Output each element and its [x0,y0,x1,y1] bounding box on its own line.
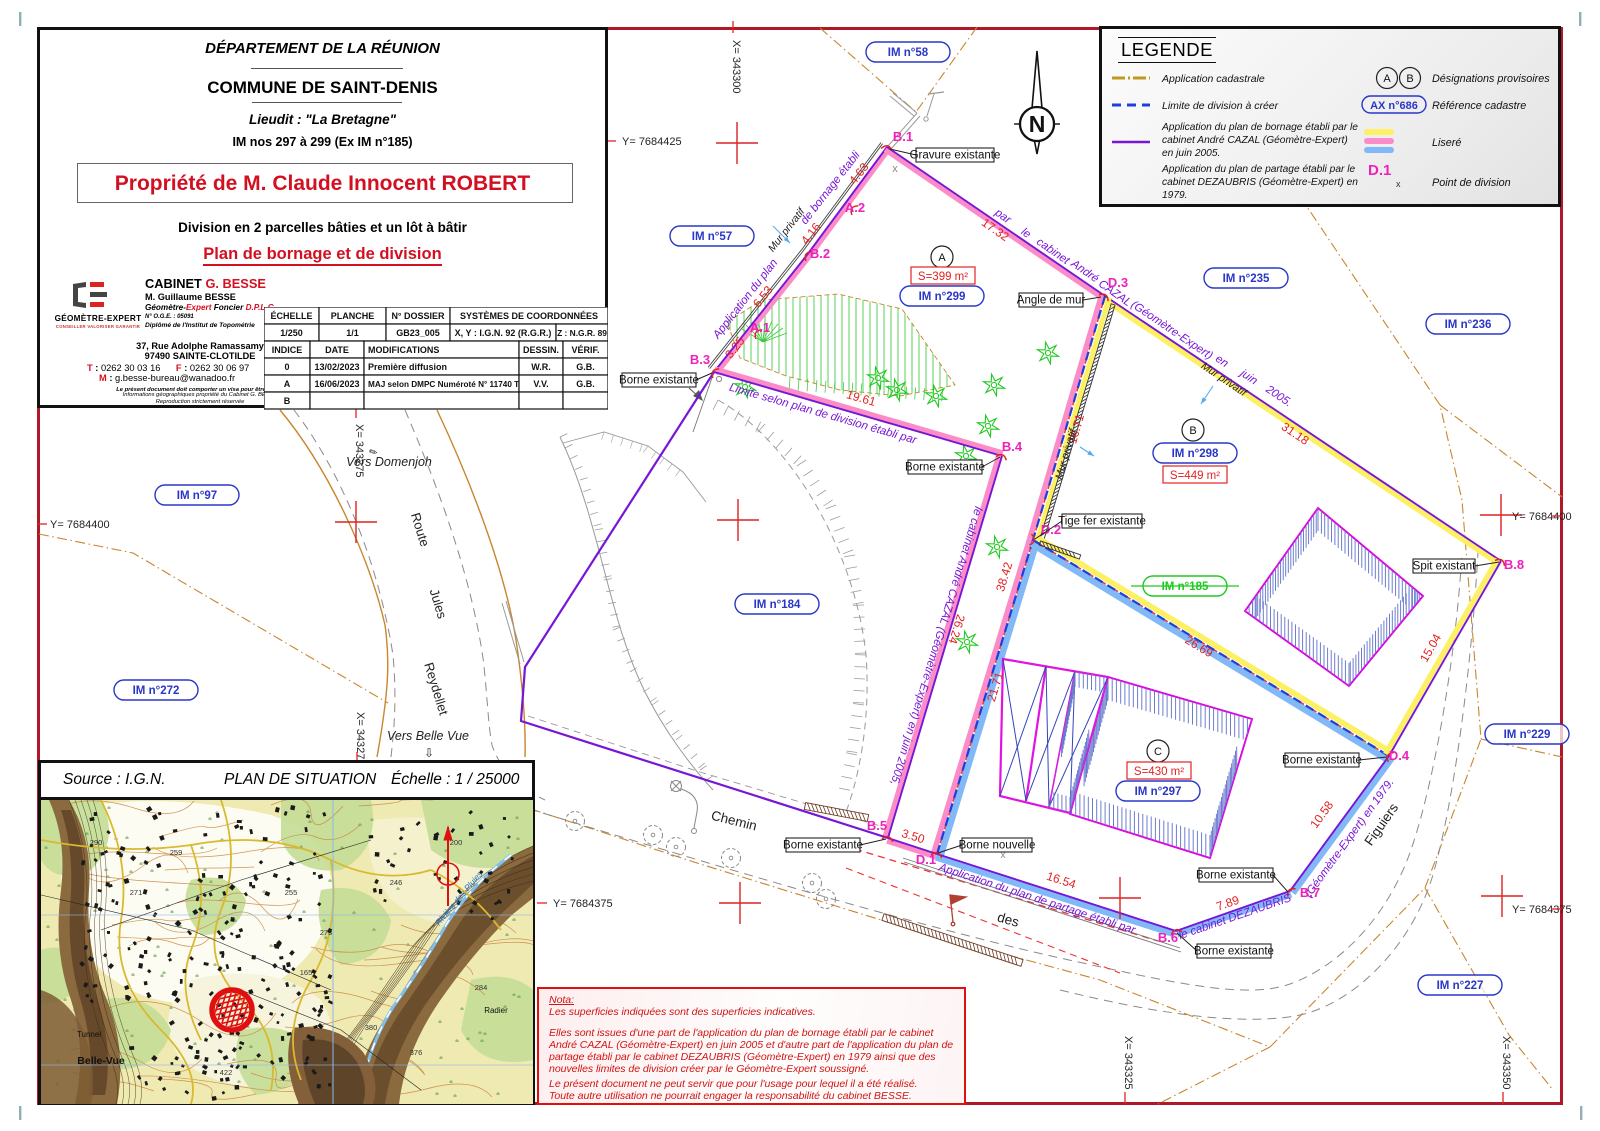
svg-text:16.54: 16.54 [1045,869,1078,892]
svg-text:Belle-Vue: Belle-Vue [77,1055,125,1067]
svg-text:X= 343350: X= 343350 [1500,1036,1512,1090]
svg-text:Route: Route [408,511,432,549]
svg-text:246: 246 [390,878,403,887]
svg-text:IM n°184: IM n°184 [754,599,801,611]
svg-text:IM n°297: IM n°297 [1135,786,1182,798]
svg-text:A: A [1383,73,1391,85]
svg-text:290: 290 [90,838,103,847]
svg-text:C: C [1154,746,1162,758]
svg-text:B.6: B.6 [1158,930,1178,945]
svg-text:D.3: D.3 [1108,275,1128,290]
svg-text:Désignations provisoires: Désignations provisoires [1432,73,1550,85]
svg-text:G.B.: G.B. [576,379,595,389]
svg-text:271: 271 [130,888,143,897]
svg-text:284: 284 [475,983,488,992]
svg-text:Borne nouvelle: Borne nouvelle [959,840,1036,852]
svg-text:VÉRIF.: VÉRIF. [571,345,599,355]
svg-text:422: 422 [220,1068,233,1077]
svg-text:IM n°227: IM n°227 [1437,980,1484,992]
svg-text:MAJ selon DMPC Numéroté N° 117: MAJ selon DMPC Numéroté N° 11740 T [368,380,519,389]
svg-text:A: A [938,252,946,264]
svg-text:IM n°236: IM n°236 [1445,319,1492,331]
svg-text:Chemin: Chemin [710,808,759,834]
svg-text:165: 165 [300,968,313,977]
svg-text:Borne existante: Borne existante [619,375,699,387]
svg-text:Tige fer existante: Tige fer existante [1058,516,1146,528]
svg-text:D.1: D.1 [916,852,936,867]
svg-text:259: 259 [170,848,183,857]
svg-text:S=399 m²: S=399 m² [918,271,968,283]
svg-text:IM n°229: IM n°229 [1504,729,1551,741]
svg-text:273: 273 [320,928,333,937]
svg-text:Borne existante: Borne existante [1282,755,1362,767]
svg-text:Application cadastrale: Application cadastrale [1161,73,1265,85]
svg-text:(Géomètre-Expert) en 1979.: (Géomètre-Expert) en 1979. [1302,777,1396,900]
svg-text:Borne existante: Borne existante [1196,870,1276,882]
svg-text:B.3: B.3 [690,352,710,367]
svg-text:B.2: B.2 [810,246,830,261]
svg-text:1979.: 1979. [1162,190,1188,201]
svg-text:B: B [1406,73,1413,85]
svg-text:DESSIN.: DESSIN. [523,345,559,355]
svg-text:X= 343275: X= 343275 [353,424,365,478]
svg-text:380: 380 [365,1023,378,1032]
svg-text:Borne existante: Borne existante [783,840,863,852]
svg-text:Y= 7684375: Y= 7684375 [1512,904,1572,916]
svg-text:A.1: A.1 [750,320,770,335]
svg-text:Y= 7684400: Y= 7684400 [1512,511,1572,523]
svg-text:1/250: 1/250 [280,328,303,338]
svg-text:376: 376 [410,1048,423,1057]
svg-text:Jules: Jules [427,587,450,621]
svg-text:Vers Belle Vue: Vers Belle Vue [387,729,469,743]
svg-text:Angle de mur: Angle de mur [1017,295,1086,307]
svg-text:Tunnel: Tunnel [77,1030,101,1039]
svg-text:des: des [996,909,1021,929]
svg-text:N° DOSSIER: N° DOSSIER [391,311,445,321]
svg-text:S=430 m²: S=430 m² [1134,766,1184,778]
svg-text:D.1: D.1 [1368,162,1391,179]
svg-text:N: N [1029,111,1046,137]
svg-text:Radier: Radier [484,1006,508,1015]
svg-text:Application du plan de bornage: Application du plan de bornage établi pa… [1161,122,1358,133]
svg-text:Reydellet: Reydellet [421,661,451,718]
svg-text:Application du plan de partage: Application du plan de partage établi pa… [1161,164,1355,175]
svg-text:Spit existant: Spit existant [1413,561,1476,573]
svg-text:x: x [892,163,898,175]
svg-text:SYSTÈMES DE COORDONNÉES: SYSTÈMES DE COORDONNÉES [460,311,598,321]
svg-text:A: A [284,379,291,389]
svg-text:Limite de division à créer: Limite de division à créer [1162,100,1279,112]
svg-text:Liseré: Liseré [1432,137,1461,149]
svg-text:Référence cadastre: Référence cadastre [1432,100,1526,112]
svg-text:DATE: DATE [325,345,349,355]
svg-text:13/02/2023: 13/02/2023 [314,362,359,372]
svg-text:Mur privatif: Mur privatif [766,205,808,254]
svg-text:x: x [1396,179,1401,189]
svg-text:IM n°298: IM n°298 [1172,448,1219,460]
svg-text:Application du plan de partage: Application du plan de partage établi pa… [936,861,1138,937]
svg-text:IM n°235: IM n°235 [1223,273,1270,285]
svg-text:en juin 2005.: en juin 2005. [1162,148,1220,159]
svg-text:X= 343275: X= 343275 [354,712,366,766]
svg-text:IM n°58: IM n°58 [888,47,929,59]
svg-text:IM n°97: IM n°97 [177,490,217,502]
svg-text:Borne existante: Borne existante [1194,946,1274,958]
svg-text:Gravure existante: Gravure existante [910,150,1001,162]
svg-text:⇩: ⇩ [424,746,434,760]
svg-text:PLANCHE: PLANCHE [331,311,375,321]
svg-text:Point de division: Point de division [1432,177,1511,189]
svg-text:IM n°185: IM n°185 [1162,581,1209,593]
svg-text:AX n°686: AX n°686 [1370,100,1418,112]
svg-text:A.2: A.2 [845,200,865,215]
svg-text:16/06/2023: 16/06/2023 [314,379,359,389]
svg-text:cabinet André CAZAL (Géomètre-: cabinet André CAZAL (Géomètre-Expert) [1162,135,1348,146]
svg-text:ÉCHELLE: ÉCHELLE [270,311,312,321]
svg-text:IM n°57: IM n°57 [692,231,732,243]
svg-text:X, Y : I.G.N. 92 (R.G.R.): X, Y : I.G.N. 92 (R.G.R.) [455,328,552,338]
svg-text:GB23_005: GB23_005 [396,328,440,338]
svg-text:MODIFICATIONS: MODIFICATIONS [368,345,439,355]
svg-text:B: B [1189,425,1196,437]
svg-text:G.B.: G.B. [576,362,595,372]
svg-text:INDICE: INDICE [272,345,303,355]
svg-text:Z : N.G.R. 89: Z : N.G.R. 89 [557,328,607,338]
svg-text:Première diffusion: Première diffusion [368,362,447,372]
svg-text:255: 255 [285,888,298,897]
svg-text:W.R.: W.R. [531,362,551,372]
svg-text:10.58: 10.58 [1307,798,1336,831]
svg-text:B.1: B.1 [893,129,913,144]
svg-text:0: 0 [284,362,289,372]
svg-text:IM n°299: IM n°299 [919,291,966,303]
svg-text:D.4: D.4 [1389,748,1410,763]
svg-text:(Géomètre-Expert): (Géomètre-Expert) [1129,299,1215,363]
svg-text:de bornage établi: de bornage établi [799,149,863,227]
svg-text:S=449 m²: S=449 m² [1170,470,1220,482]
svg-text:1/1: 1/1 [346,328,359,338]
svg-text:X= 343300: X= 343300 [730,40,742,94]
svg-text:B: B [284,396,291,406]
svg-text:B.5: B.5 [867,818,887,833]
svg-text:X= 343325: X= 343325 [1122,1036,1134,1090]
svg-text:Y= 7684400: Y= 7684400 [50,519,110,531]
svg-text:Y= 7684375: Y= 7684375 [553,898,613,910]
svg-text:cabinet DEZAUBRIS (Géomètre-Ex: cabinet DEZAUBRIS (Géomètre-Expert) en [1162,177,1358,188]
svg-text:Limite selon plan de division: Limite selon plan de division établi par [728,382,919,447]
svg-text:B.8: B.8 [1504,557,1524,572]
svg-text:Y= 7684425: Y= 7684425 [622,136,682,148]
svg-text:B.7: B.7 [1300,885,1320,900]
svg-text:IM n°272: IM n°272 [133,685,180,697]
svg-text:B.4: B.4 [1002,439,1023,454]
svg-text:Borne existante: Borne existante [905,462,985,474]
svg-text:V.V.: V.V. [533,379,548,389]
